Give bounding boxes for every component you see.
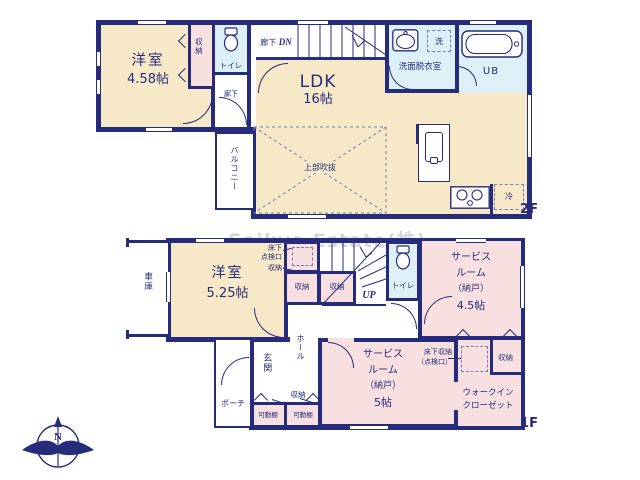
f2-dn-text: DN <box>279 37 292 47</box>
f1-closet-left-label: 収納 <box>284 282 320 291</box>
f1-service-a-line3: （納戸） <box>438 284 504 295</box>
f1-floor-label: 1F <box>516 416 542 432</box>
f2-toilet-label: トイレ <box>215 61 247 70</box>
f2-window-bottom-room <box>146 127 172 132</box>
f2-washbasin-icon <box>392 29 419 52</box>
f2-window-bottom-ldk <box>288 214 326 219</box>
f1-porch-label: ポーチ <box>216 399 250 409</box>
f1-underfloor-line2: （点検口） <box>406 358 452 367</box>
f1-underfloor-square <box>461 346 488 372</box>
f1-western-room-size: 5.25帖 <box>185 286 270 302</box>
f1-toilet-icon <box>394 245 412 271</box>
f1-service-a-line2: ルーム <box>438 268 504 281</box>
f1-entrance-label: 玄関 <box>260 353 271 373</box>
f2-kitchen-wall-stub <box>416 124 419 144</box>
f1-hatch-label-2: 点検口 <box>246 253 282 262</box>
f2-balcony-label: バルコニー <box>229 146 239 191</box>
f1-service-b-line2: ルーム <box>348 365 418 378</box>
f1-window-right-service <box>520 266 525 308</box>
floor-plan: Saikyo Estate(株) 収納 トイレ 廊下 廊下 DN <box>0 0 640 480</box>
f1-stairs-rail <box>322 304 386 306</box>
f2-toilet-icon <box>222 27 240 53</box>
f1-wic-line1: ウォークイン <box>456 388 520 399</box>
f2-corridor-dn-label: 廊下 DN <box>257 37 295 48</box>
f1-service-b-line4: 5帖 <box>348 396 418 410</box>
f1-wic-closet-label: 収納 <box>490 353 521 362</box>
f2-window-top-1 <box>138 20 166 25</box>
f1-toilet-door-arc <box>391 303 417 329</box>
f2-stove-icon <box>450 186 490 209</box>
f2-corridor-text: 廊下 <box>260 38 276 47</box>
f2-void-label: 上部吹抜 <box>287 163 353 173</box>
f2-closet <box>188 25 212 89</box>
f1-garage-stub-bottom <box>126 330 129 339</box>
f1-garage-stub-top <box>126 238 129 247</box>
f2-fridge-wall-stub <box>490 184 493 214</box>
f1-garage-label: 車庫 <box>142 272 153 291</box>
compass-north-letter: N <box>54 431 62 443</box>
f2-bathtub-icon <box>461 30 523 58</box>
f2-kitchen-faucet <box>430 157 438 164</box>
f2-window-top-stairs <box>298 20 328 25</box>
f1-hatch-label-1: 床下 <box>250 244 282 253</box>
f2-ldk-size: 16帖 <box>280 92 356 108</box>
compass-icon: N <box>16 410 96 476</box>
f1-wic-line2: クローゼット <box>456 401 520 412</box>
f1-window-top-service <box>456 238 486 243</box>
f2-ldk-name: LDK <box>280 72 356 93</box>
f1-underfloor-pointer <box>448 358 461 359</box>
f1-service-b-line3: （納戸） <box>348 381 418 392</box>
f2-wall-corridor-ldk <box>247 25 251 127</box>
f1-hall-label: ホール <box>295 334 305 361</box>
f2-corridor-door-arc <box>219 97 247 125</box>
f1-window-top-room <box>196 238 224 243</box>
f2-fridge-label: 冷 <box>494 192 524 202</box>
f1-hatch-closet-label: 収納 <box>252 264 282 273</box>
f2-washer-label: 洗 <box>427 37 451 47</box>
f2-window-left-2 <box>96 80 101 94</box>
f2-closet-label: 収納 <box>194 38 203 55</box>
f1-underfloor-line1: 床下収納 <box>408 348 452 357</box>
f1-service-a-line1: サービス <box>438 252 504 265</box>
f1-shelf-right-label: 可動棚 <box>287 411 319 419</box>
f1-hatch-square <box>292 247 313 266</box>
f2-western-room-size: 4.58帖 <box>108 72 188 88</box>
f2-floor-label: 2F <box>516 202 542 218</box>
f2-western-room-name: 洋室 <box>108 52 188 70</box>
f2-stairs-treads <box>290 25 388 57</box>
f2-window-right <box>527 95 532 157</box>
f1-window-bottom-service <box>350 425 388 430</box>
f1-up-label: UP <box>356 290 382 303</box>
f1-toilet-label: トイレ <box>386 281 420 290</box>
f1-shelf-left-label: 可動棚 <box>252 411 284 419</box>
f2-window-top-bath <box>470 20 496 25</box>
f2-window-left-1 <box>96 52 101 66</box>
